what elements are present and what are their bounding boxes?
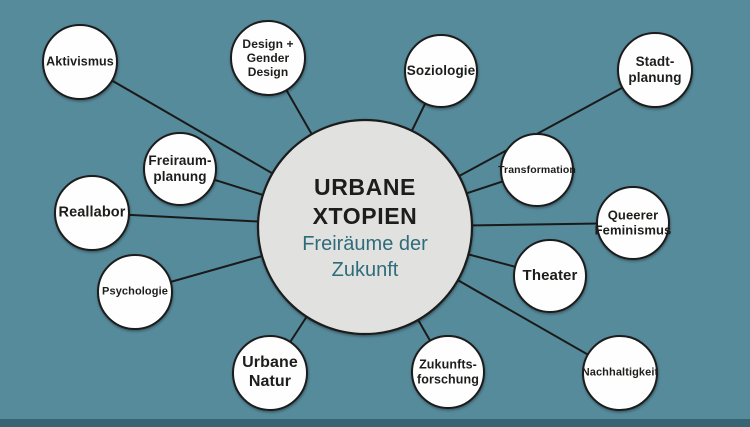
node-circle-zukunftsforschung <box>412 336 484 408</box>
node-circle-urbane-natur <box>233 336 307 410</box>
diagram-layer <box>0 0 750 427</box>
bottom-bar <box>0 419 750 427</box>
center-node-circle <box>258 120 472 334</box>
node-circle-aktivismus <box>43 25 117 99</box>
node-circle-soziologie <box>405 35 477 107</box>
node-circle-queerer-feminismus <box>597 187 669 259</box>
node-circle-freiraumplanung <box>144 133 216 205</box>
node-circle-reallabor <box>55 176 129 250</box>
node-circle-design-gender-design <box>231 21 305 95</box>
mindmap-canvas: AktivismusDesign + Gender DesignSoziolog… <box>0 0 750 427</box>
node-circle-psychologie <box>98 255 172 329</box>
node-circle-nachhaltigkeit <box>583 336 657 410</box>
node-circle-transformation <box>501 134 573 206</box>
node-circle-stadtplanung <box>618 33 692 107</box>
node-circle-theater <box>514 240 586 312</box>
